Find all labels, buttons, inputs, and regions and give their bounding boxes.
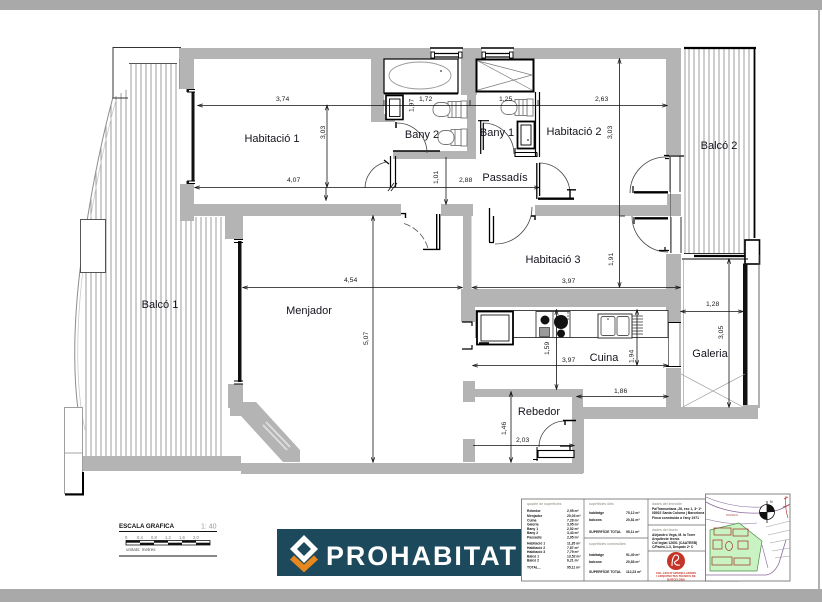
svg-text:dades del tècnic: dades del tècnic xyxy=(652,528,678,532)
svg-text:Balcó 2: Balcó 2 xyxy=(527,559,539,563)
svg-text:5,07: 5,07 xyxy=(363,332,370,345)
svg-text:2,63: 2,63 xyxy=(595,96,608,103)
svg-text:Bany 2: Bany 2 xyxy=(405,129,439,141)
svg-text:1,2: 1,2 xyxy=(165,535,171,540)
svg-text:2,95 m²: 2,95 m² xyxy=(567,509,580,513)
svg-text:3,05: 3,05 xyxy=(718,326,725,339)
svg-text:superficies construïdes: superficies construïdes xyxy=(589,542,626,546)
svg-text:91,40 m²: 91,40 m² xyxy=(626,553,640,557)
svg-text:SUPERFÍCIE TOTAL: SUPERFÍCIE TOTAL xyxy=(589,569,621,574)
svg-text:1,97: 1,97 xyxy=(409,99,416,112)
svg-text:1,6: 1,6 xyxy=(179,535,185,540)
svg-text:3,03: 3,03 xyxy=(607,126,614,139)
svg-text:6,21 m²: 6,21 m² xyxy=(567,559,580,563)
svg-text:SUPERFÍCIE TOTAL: SUPERFÍCIE TOTAL xyxy=(589,529,621,534)
svg-text:Bany 1: Bany 1 xyxy=(480,127,514,139)
svg-text:Passadís: Passadís xyxy=(527,536,542,540)
svg-text:2,95 m²: 2,95 m² xyxy=(567,536,580,540)
svg-text:Passadís: Passadís xyxy=(482,172,528,184)
svg-text:Cuina: Cuina xyxy=(590,352,620,364)
svg-text:95,11 m²: 95,11 m² xyxy=(567,566,581,570)
svg-text:PASSEIG: PASSEIG xyxy=(726,513,738,517)
svg-text:2,88: 2,88 xyxy=(459,177,472,184)
svg-text:Habitació 3: Habitació 3 xyxy=(525,254,580,266)
svg-text:0,4: 0,4 xyxy=(137,535,143,540)
svg-text:3,97: 3,97 xyxy=(562,278,575,285)
svg-text:Balcó 1: Balcó 1 xyxy=(142,299,179,311)
svg-text:habitatge: habitatge xyxy=(589,511,604,515)
svg-text:balcons: balcons xyxy=(589,518,602,522)
svg-text:quadre de superficies: quadre de superficies xyxy=(527,502,562,506)
svg-text:C/Padró,1-3, Despatx 2º C: C/Padró,1-3, Despatx 2º C xyxy=(652,545,694,549)
svg-text:ESCALA GRAFICA: ESCALA GRAFICA xyxy=(119,523,175,530)
svg-text:1: 40: 1: 40 xyxy=(201,524,217,531)
svg-text:3,97: 3,97 xyxy=(562,357,575,364)
svg-text:75,12 m²: 75,12 m² xyxy=(626,511,640,515)
svg-text:3,03: 3,03 xyxy=(320,126,327,139)
svg-text:Habitació 1: Habitació 1 xyxy=(244,133,299,145)
svg-text:1,91: 1,91 xyxy=(608,253,615,266)
svg-text:balcons: balcons xyxy=(589,560,602,564)
svg-text:1,25: 1,25 xyxy=(499,96,512,103)
svg-text:95,11 m²: 95,11 m² xyxy=(626,530,640,534)
svg-text:Galeria: Galeria xyxy=(692,348,728,360)
svg-text:PROHABITAT: PROHABITAT xyxy=(326,541,518,571)
svg-text:0,8: 0,8 xyxy=(151,535,157,540)
svg-text:Habitació 2: Habitació 2 xyxy=(546,126,601,138)
svg-text:20,83 m²: 20,83 m² xyxy=(626,560,640,564)
svg-text:Balcó 2: Balcó 2 xyxy=(701,140,738,152)
svg-text:unitats: metres: unitats: metres xyxy=(126,547,156,552)
svg-text:3,74: 3,74 xyxy=(276,96,289,103)
svg-text:1,28: 1,28 xyxy=(706,301,719,308)
svg-text:Rebedor: Rebedor xyxy=(527,509,541,513)
svg-text:BARCELONA: BARCELONA xyxy=(667,577,685,581)
svg-text:08922 Santa Coloma | Barcelona: 08922 Santa Coloma | Barcelona xyxy=(652,511,704,515)
svg-text:Menjador: Menjador xyxy=(286,305,332,317)
svg-text:dades del immoble: dades del immoble xyxy=(652,502,682,506)
svg-text:Finca construida a l'any 1971: Finca construida a l'any 1971 xyxy=(652,516,699,520)
svg-text:1,72: 1,72 xyxy=(419,96,432,103)
svg-text:4,54: 4,54 xyxy=(344,277,357,284)
svg-text:1,86: 1,86 xyxy=(614,388,627,395)
svg-text:4,07: 4,07 xyxy=(287,177,300,184)
svg-text:TOTAL...: TOTAL... xyxy=(527,566,541,570)
svg-text:1,01: 1,01 xyxy=(433,171,440,184)
svg-text:superficies útils: superficies útils xyxy=(589,502,614,506)
svg-text:1,59: 1,59 xyxy=(544,342,551,355)
svg-text:1,94: 1,94 xyxy=(629,350,636,363)
svg-text:habitatge: habitatge xyxy=(589,553,604,557)
svg-text:2,03: 2,03 xyxy=(516,437,529,444)
svg-text:1,46: 1,46 xyxy=(501,422,508,435)
svg-text:112,23 m²: 112,23 m² xyxy=(626,570,642,574)
svg-text:2,0: 2,0 xyxy=(193,535,199,540)
svg-text:Rebedor: Rebedor xyxy=(518,406,561,418)
svg-text:20,81 m²: 20,81 m² xyxy=(626,518,640,522)
